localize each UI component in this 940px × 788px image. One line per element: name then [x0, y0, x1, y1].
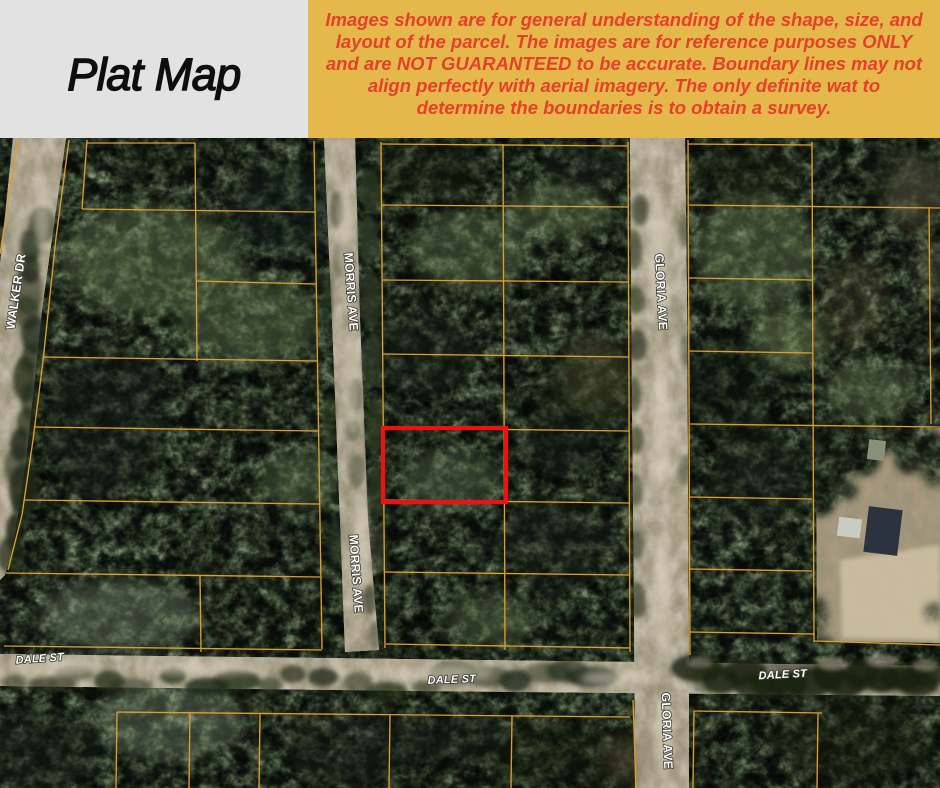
- svg-text:DALE ST: DALE ST: [427, 673, 477, 687]
- svg-text:GLORIA AVE: GLORIA AVE: [659, 692, 676, 769]
